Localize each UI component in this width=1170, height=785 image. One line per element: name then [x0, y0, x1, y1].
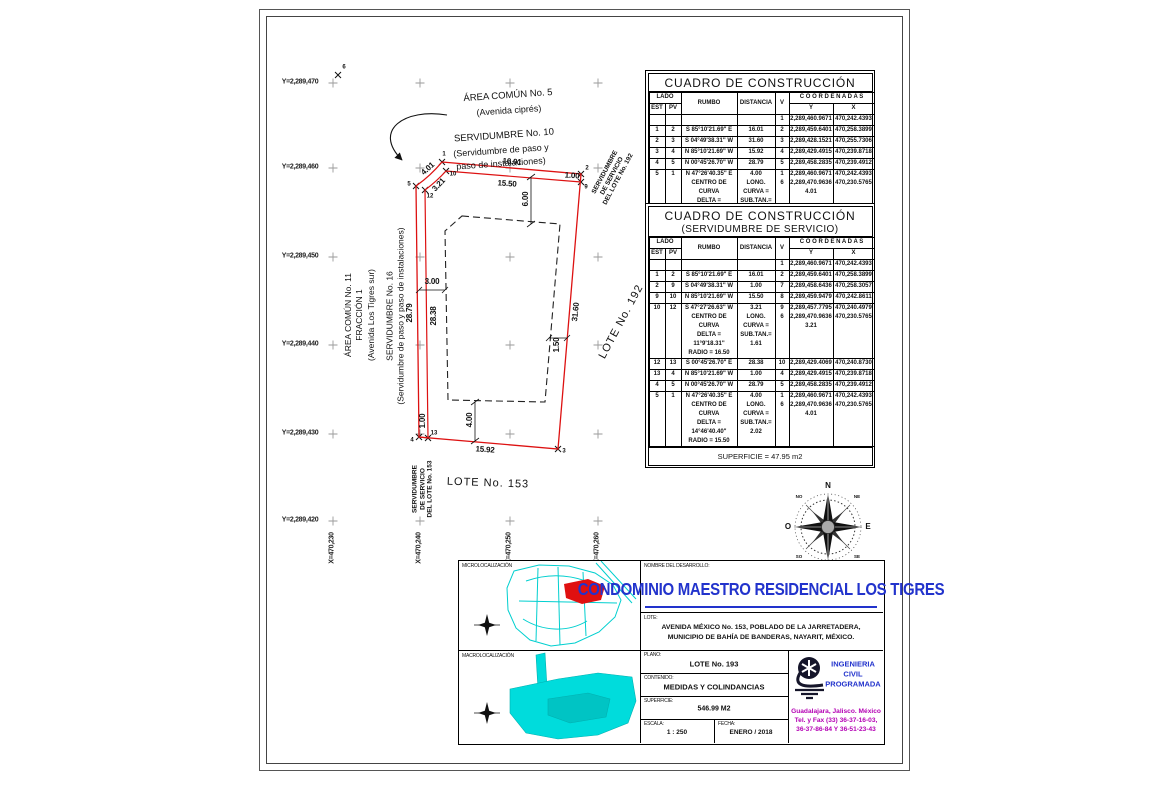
- cell: 4: [665, 147, 681, 158]
- micro-compass-icon: [474, 614, 500, 636]
- macro-map: [510, 653, 636, 739]
- vertex-label: 9: [584, 184, 587, 192]
- cell: 28.79: [737, 158, 775, 169]
- dim-left-outer: 28.79: [405, 303, 415, 322]
- compass-e: E: [865, 522, 870, 532]
- cell: 5: [665, 158, 681, 169]
- firm-contact: Guadalajara, Jalisco. México Tel. y Fax …: [791, 707, 881, 735]
- table-row: 23S 04°49'38.31" W31.6032,289,428.152147…: [649, 136, 874, 147]
- dim-top-outer: 16.01: [502, 156, 522, 167]
- macro-label: MACROLOCALIZACIÓN: [462, 653, 514, 659]
- dim-setback-top: 6.00: [521, 192, 531, 207]
- annotation-area-comun-11: ÁREA COMÚN No. 11 FRACCIÓN 1 (Avenida Lo…: [343, 269, 377, 361]
- fecha-label: FECHA:: [718, 721, 735, 727]
- vertex-label: 3: [562, 448, 565, 456]
- cell: 4: [649, 158, 665, 169]
- cell: 12: [665, 303, 681, 358]
- cell: 470,242.4393 470,230.5765: [833, 391, 874, 446]
- dim-right-edge: 31.60: [570, 302, 582, 322]
- cell: [665, 114, 681, 125]
- table-title: CUADRO DE CONSTRUCCIÓN: [649, 74, 872, 92]
- cell: 2,289,460.9671 2,289,470.9636 4.01: [789, 391, 833, 446]
- nombre-label: NOMBRE DEL DESARROLLO:: [644, 563, 709, 569]
- cell: 470,239.8718: [833, 369, 874, 380]
- fecha-value: ENERO / 2018: [730, 729, 773, 737]
- dim-right-cap: 1.00: [564, 170, 579, 181]
- cell: 1: [649, 270, 665, 281]
- cell: 5: [775, 158, 789, 169]
- plano-value: LOTE No. 193: [690, 659, 739, 668]
- plano-label: PLANO:: [644, 652, 661, 658]
- cell: [737, 114, 775, 125]
- grid-label-y: Y=2,289,440: [282, 341, 319, 350]
- header-pv: PV: [665, 103, 681, 114]
- lot-boundary: [416, 162, 581, 449]
- cell: 2: [665, 270, 681, 281]
- header-lado: LADO: [649, 237, 681, 248]
- cell: 1 6: [775, 391, 789, 446]
- cell: 16.01: [737, 270, 775, 281]
- cell: N 85°10'21.69" W: [681, 369, 737, 380]
- cell: 3.21 LONG. CURVA = SUB.TAN.= 1.61: [737, 303, 775, 358]
- cell: [681, 259, 737, 270]
- title-underline: [645, 606, 877, 608]
- cell: N 85°10'21.69" W: [681, 147, 737, 158]
- vertex-label: 5: [407, 181, 410, 189]
- grid-label-y: Y=2,289,430: [282, 430, 319, 439]
- cell: 470,258.3899: [833, 125, 874, 136]
- cell: 2,289,429.4915: [789, 369, 833, 380]
- cell: 2,289,429.4915: [789, 147, 833, 158]
- grid-label-y: Y=2,289,470: [282, 79, 319, 88]
- cell: 4: [775, 147, 789, 158]
- development-name: CONDOMINIO MAESTRO RESIDENCIAL LOS TIGRE…: [578, 580, 945, 602]
- cell: 4: [665, 369, 681, 380]
- vertex-label: 13: [431, 430, 438, 438]
- cell: S 04°49'38.31" W: [681, 281, 737, 292]
- dim-setback-left: 3.00: [425, 277, 440, 287]
- cell: 28.79: [737, 380, 775, 391]
- cell: 1: [775, 259, 789, 270]
- header-x: X: [833, 103, 874, 114]
- cell: N 00°45'26.70" W: [681, 158, 737, 169]
- cell: 470,239.4912: [833, 158, 874, 169]
- header-v: V: [775, 92, 789, 114]
- superficie-total: SUPERFICIE = 47.95 m2: [649, 447, 872, 465]
- vertex-label: 2: [585, 165, 588, 173]
- lote-label: LOTE:: [644, 615, 657, 621]
- cell: 13: [665, 358, 681, 369]
- table-header-row: LADO RUMBO DISTANCIA V C O O R D E N A D…: [649, 237, 874, 248]
- cell: 470,255.7306: [833, 136, 874, 147]
- vertex-label: 4: [410, 437, 413, 445]
- cell: S 85°10'21.69" E: [681, 270, 737, 281]
- table-header-row: LADO RUMBO DISTANCIA V C O O R D E N A D…: [649, 92, 874, 103]
- cell: S 04°49'38.31" W: [681, 136, 737, 147]
- cell: 2,289,458.6436: [789, 281, 833, 292]
- cell: 2: [775, 125, 789, 136]
- servitude-table: CUADRO DE CONSTRUCCIÓN (SERVIDUMBRE DE S…: [645, 203, 875, 468]
- cell: 15.50: [737, 292, 775, 303]
- grid-label-x: X=470,260: [594, 532, 603, 563]
- cell: 2: [649, 281, 665, 292]
- cell: 9 6: [775, 303, 789, 358]
- header-distancia: DISTANCIA: [737, 92, 775, 114]
- table-row: 12,289,460.9671470,242.4393: [649, 259, 874, 270]
- dim-top-inner: 15.50: [497, 178, 517, 189]
- cell: 3: [775, 136, 789, 147]
- cell: 12: [649, 358, 665, 369]
- macro-compass-icon: [474, 702, 500, 724]
- dim-left-inner: 28.38: [429, 306, 439, 325]
- micro-map: [507, 561, 636, 646]
- grid-label-y: Y=2,289,460: [282, 164, 319, 173]
- cell: 31.60: [737, 136, 775, 147]
- table-row: 134N 85°10'21.69" W1.0042,289,429.491547…: [649, 369, 874, 380]
- cell: 15.92: [737, 147, 775, 158]
- label-lote-153: LOTE No. 153: [447, 476, 530, 493]
- cell: 2,289,460.9671: [789, 114, 833, 125]
- cell: 2: [665, 125, 681, 136]
- table-row: 45N 00°45'26.70" W28.7952,289,458.283547…: [649, 158, 874, 169]
- cell: 470,242.8611: [833, 292, 874, 303]
- compass-n: N: [825, 481, 831, 491]
- cell: 5: [649, 391, 665, 446]
- grid-label-x: X=470,230: [329, 532, 338, 563]
- lote-address: AVENIDA MÉXICO No. 153, POBLADO DE LA JA…: [661, 623, 860, 643]
- cell: 5: [665, 380, 681, 391]
- servitude-line: [419, 171, 581, 438]
- cell: 470,258.3057: [833, 281, 874, 292]
- compass-o: O: [785, 522, 791, 532]
- table-row: 12S 85°10'21.69" E16.0122,289,459.640147…: [649, 270, 874, 281]
- table-row: 1213S 00°45'26.70" E28.38102,289,429.406…: [649, 358, 874, 369]
- cell: [681, 114, 737, 125]
- cell: [665, 259, 681, 270]
- escala-value: 1 : 250: [667, 729, 687, 737]
- cell: 2: [649, 136, 665, 147]
- cell: 2,289,460.9671: [789, 259, 833, 270]
- cell: 2,289,459.6401: [789, 270, 833, 281]
- cell: 1.00: [737, 281, 775, 292]
- dim-setback-right: 1.50: [552, 338, 562, 353]
- superficie-label: SUPERFICIE:: [644, 698, 673, 704]
- cell: 16.01: [737, 125, 775, 136]
- micro-label: MICROLOCALIZACIÓN: [462, 563, 512, 569]
- cell: 2,289,457.7795 2,289,470.9636 3.21: [789, 303, 833, 358]
- header-lado: LADO: [649, 92, 681, 103]
- cell: 2,289,459.6401: [789, 125, 833, 136]
- cell: 8: [775, 292, 789, 303]
- cell: 28.38: [737, 358, 775, 369]
- grid-label-y: Y=2,289,450: [282, 253, 319, 262]
- table-row: 910N 85°10'21.69" W15.5082,289,459.94794…: [649, 292, 874, 303]
- cell: 4: [775, 369, 789, 380]
- header-est: EST: [649, 103, 665, 114]
- table-row-curve: 51N 47°26'40.35" E CENTRO DE CURVA DELTA…: [649, 391, 874, 446]
- grid-label-y: Y=2,289,420: [282, 517, 319, 526]
- header-rumbo: RUMBO: [681, 92, 737, 114]
- dim-setback-bottom: 4.00: [465, 413, 475, 428]
- header-est: EST: [649, 248, 665, 259]
- firm-logo-icon: [795, 657, 824, 698]
- cell: 2: [775, 270, 789, 281]
- cell: S 85°10'21.69" E: [681, 125, 737, 136]
- cell: 4: [649, 380, 665, 391]
- header-coordenadas: C O O R D E N A D A S: [789, 237, 874, 248]
- header-distancia: DISTANCIA: [737, 237, 775, 259]
- table-row-curve: 1012S 47°27'26.63" W CENTRO DE CURVA DEL…: [649, 303, 874, 358]
- compass-rose: [794, 493, 862, 561]
- header-y: Y: [789, 103, 833, 114]
- table-row: 29S 04°49'38.31" W1.0072,289,458.6436470…: [649, 281, 874, 292]
- table-row: 12,289,460.9671470,242.4393: [649, 114, 874, 125]
- compass-so: SO: [796, 554, 803, 560]
- table-row: 12S 85°10'21.69" E16.0122,289,459.640147…: [649, 125, 874, 136]
- header-v: V: [775, 237, 789, 259]
- cell: S 00°45'26.70" E: [681, 358, 737, 369]
- superficie-value: 546.99 M2: [697, 706, 730, 715]
- cell: 2,289,459.9479: [789, 292, 833, 303]
- cell: 2,289,428.1521: [789, 136, 833, 147]
- header-rumbo: RUMBO: [681, 237, 737, 259]
- header-x: X: [833, 248, 874, 259]
- cell: 13: [649, 369, 665, 380]
- cell: 470,240.4979 470,230.5765: [833, 303, 874, 358]
- cell: 2,289,458.2835: [789, 380, 833, 391]
- cell: 470,240.8730: [833, 358, 874, 369]
- cell: N 85°10'21.69" W: [681, 292, 737, 303]
- label-servidumbre-lote-153: SERVIDUMBRE DE SERVICIO DEL LOTE No. 153: [412, 461, 435, 518]
- cell: 4.00 LONG. CURVA = SUB.TAN.= 2.02: [737, 391, 775, 446]
- dashed-building-limit: [445, 216, 560, 402]
- table-subtitle: (SERVIDUMBRE DE SERVICIO): [649, 224, 872, 237]
- compass-se: SE: [854, 554, 860, 560]
- table-row: 34N 85°10'21.69" W15.9242,289,429.491547…: [649, 147, 874, 158]
- cell: 2,289,458.2835: [789, 158, 833, 169]
- cell: 1: [665, 391, 681, 446]
- cell: 470,239.4912: [833, 380, 874, 391]
- compass-ne: NE: [854, 494, 860, 500]
- leader-arrow: [390, 114, 447, 160]
- title-block: MICROLOCALIZACIÓN MACROLOCALIZACIÓN NOMB…: [458, 560, 885, 745]
- cell: 470,258.3899: [833, 270, 874, 281]
- dim-bottom-edge: 15.92: [475, 444, 495, 455]
- cell: 1: [649, 125, 665, 136]
- cell: 5: [775, 380, 789, 391]
- contenido-value: MEDIDAS Y COLINDANCIAS: [664, 682, 765, 691]
- firm-name: INGENIERIA CIVIL PROGRAMADA: [825, 659, 880, 688]
- vertex-label: 1: [442, 151, 445, 159]
- header-pv: PV: [665, 248, 681, 259]
- cell: 470,239.8718: [833, 147, 874, 158]
- cell: 9: [649, 292, 665, 303]
- table-title: CUADRO DE CONSTRUCCIÓN: [649, 207, 872, 224]
- cell: 9: [665, 281, 681, 292]
- cell: [737, 259, 775, 270]
- compass-no: NO: [796, 494, 803, 500]
- table-row: 45N 00°45'26.70" W28.7952,289,458.283547…: [649, 380, 874, 391]
- header-y: Y: [789, 248, 833, 259]
- cell: [649, 259, 665, 270]
- cell: 1: [775, 114, 789, 125]
- cell: N 47°26'40.35" E CENTRO DE CURVA DELTA =…: [681, 391, 737, 446]
- vertex-label: 10: [450, 171, 457, 179]
- dim-bottom-cap: 1.00: [418, 414, 428, 429]
- cell: N 00°45'26.70" W: [681, 380, 737, 391]
- grid-label-x: X=470,250: [506, 532, 515, 563]
- cell: 2,289,429.4069: [789, 358, 833, 369]
- cell: 10: [665, 292, 681, 303]
- dimension-lines: [416, 174, 570, 444]
- header-coordenadas: C O O R D E N A D A S: [789, 92, 874, 103]
- cell: [649, 114, 665, 125]
- cell: 3: [665, 136, 681, 147]
- cell: S 47°27'26.63" W CENTRO DE CURVA DELTA =…: [681, 303, 737, 358]
- contenido-label: CONTENIDO:: [644, 675, 673, 681]
- grid-label-x: X=470,240: [416, 532, 425, 563]
- cell: 1.00: [737, 369, 775, 380]
- cell: 10: [775, 358, 789, 369]
- cell: 7: [775, 281, 789, 292]
- cell: 3: [649, 147, 665, 158]
- escala-label: ESCALA:: [644, 721, 664, 727]
- servitude-table-grid: LADO RUMBO DISTANCIA V C O O R D E N A D…: [649, 237, 875, 447]
- cell: 470,242.4393: [833, 259, 874, 270]
- vertex-label: 12: [427, 193, 434, 201]
- vertex-label: 6: [342, 64, 345, 72]
- cell: 10: [649, 303, 665, 358]
- cell: 470,242.4393: [833, 114, 874, 125]
